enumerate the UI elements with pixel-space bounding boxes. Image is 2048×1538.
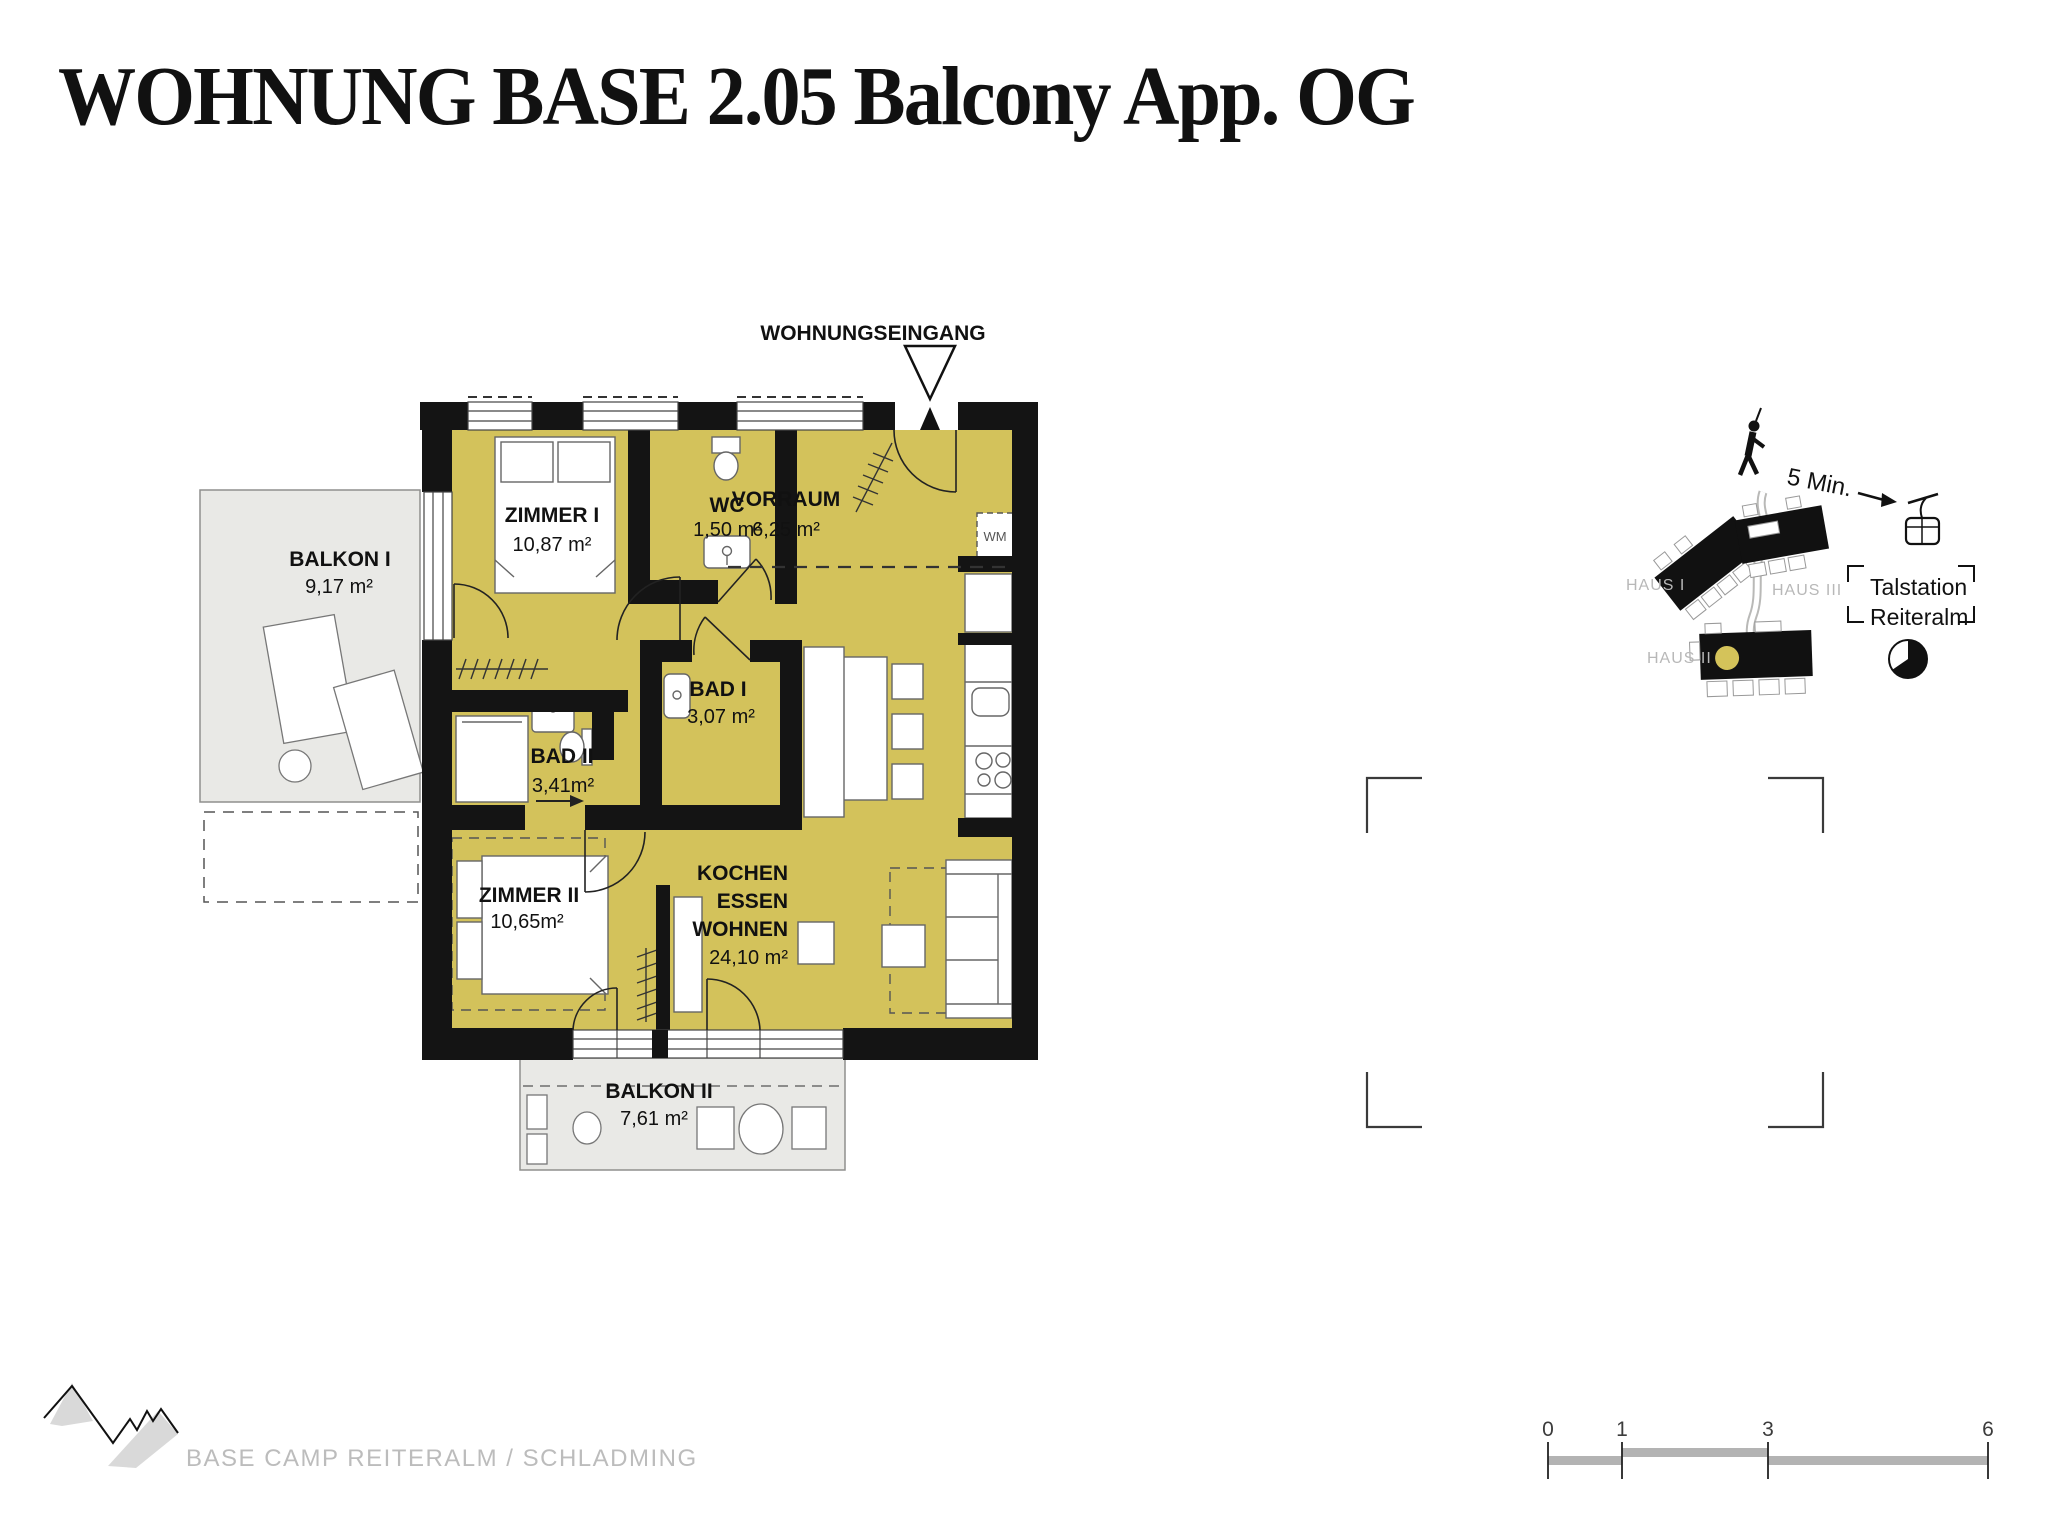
sofa [946,860,1012,1018]
scale-tick-3: 3 [1762,1418,1774,1441]
window-left [424,492,452,640]
compass-icon [1889,640,1927,678]
gondola-icon [1906,494,1939,544]
washing-machine-label: WM [983,529,1006,544]
wohnen-line1: KOCHEN [697,862,788,885]
vorraum-name: VORRAUM [732,488,841,511]
station-line1: Talstation [1870,574,1967,600]
kitchen-counter [965,644,1012,818]
site-map: 5 Min. [1626,408,1974,697]
window-top-1 [468,397,532,430]
balkon2-name: BALKON II [605,1080,712,1103]
window-top-2 [583,397,678,430]
bad2-shower [456,716,528,802]
balcony2-table [739,1104,783,1154]
floor-plan-canvas: BALKON I 9,17 m² BALKON II 7,61 m² [0,0,2048,1538]
balcony2-chair-2 [527,1134,547,1164]
bad2-area: 3,41m² [532,775,595,797]
kitchen-tall-unit [965,574,1012,632]
station-line2: Reiteralm [1870,604,1968,630]
page-title: WOHNUNG BASE 2.05 Balcony App. OG [58,48,1414,145]
wohnen-line2: ESSEN [717,890,788,913]
tv-board [674,897,702,1012]
scale-bar: 0 1 3 6 [1542,1418,1994,1479]
balcony-1: BALKON I 9,17 m² [200,490,423,902]
balcony2-table-small [573,1112,601,1144]
living-cabinet [804,647,844,817]
haus2-label: HAUS II [1647,650,1712,667]
scale-tick-0: 0 [1542,1418,1554,1441]
balkon2-area: 7,61 m² [620,1108,688,1130]
balkon1-area: 9,17 m² [305,576,373,598]
floor-plan-page: WOHNUNG BASE 2.05 Balcony App. OG BALKON… [0,0,2048,1538]
scale-tick-6: 6 [1982,1418,1994,1441]
window-top-3 [737,397,863,430]
brand-text: BASE CAMP REITERALM / SCHLADMING [186,1445,698,1472]
haus3-label: HAUS III [1772,582,1842,599]
scale-tick-1: 1 [1616,1418,1628,1441]
bad1-name: BAD I [689,678,746,701]
armchair [798,922,834,964]
balcony2-chair-3 [697,1107,734,1149]
vorraum-area: 6,25 m² [752,519,820,541]
entrance-label: WOHNUNGSEINGANG [760,322,985,345]
zimmer2-area: 10,65m² [490,911,564,933]
crop-marks [1367,778,1823,1127]
balcony1-table [279,750,311,782]
tv-partition-wall [656,885,670,1040]
mountain-logo-icon [44,1383,178,1468]
bad2-name: BAD II [531,745,594,768]
balcony2-chair-1 [527,1095,547,1129]
balcony-2: BALKON II 7,61 m² [520,1058,845,1170]
window-band-bottom [573,1030,843,1058]
wohnen-area: 24,10 m² [709,947,788,969]
zimmer2-name: ZIMMER II [479,884,579,907]
balcony2-chair-4 [792,1107,826,1149]
zimmer1-name: ZIMMER I [505,504,600,527]
wohnen-line3: WOHNEN [692,918,788,941]
bad1-area: 3,07 m² [687,706,755,728]
kitchen-sink [972,688,1009,716]
balkon1-name: BALKON I [289,548,391,571]
wc-toilet [712,437,740,480]
brand-footer: BASE CAMP REITERALM / SCHLADMING [44,1383,698,1472]
haus1-label: HAUS I [1626,577,1685,594]
wc-area: 1,50 m² [693,519,761,541]
walking-person-icon [1740,408,1764,475]
coffee-table [882,925,925,967]
walk-arrow-icon [1858,493,1897,507]
bad1-sink [664,674,690,718]
zimmer1-area: 10,87 m² [513,534,592,556]
